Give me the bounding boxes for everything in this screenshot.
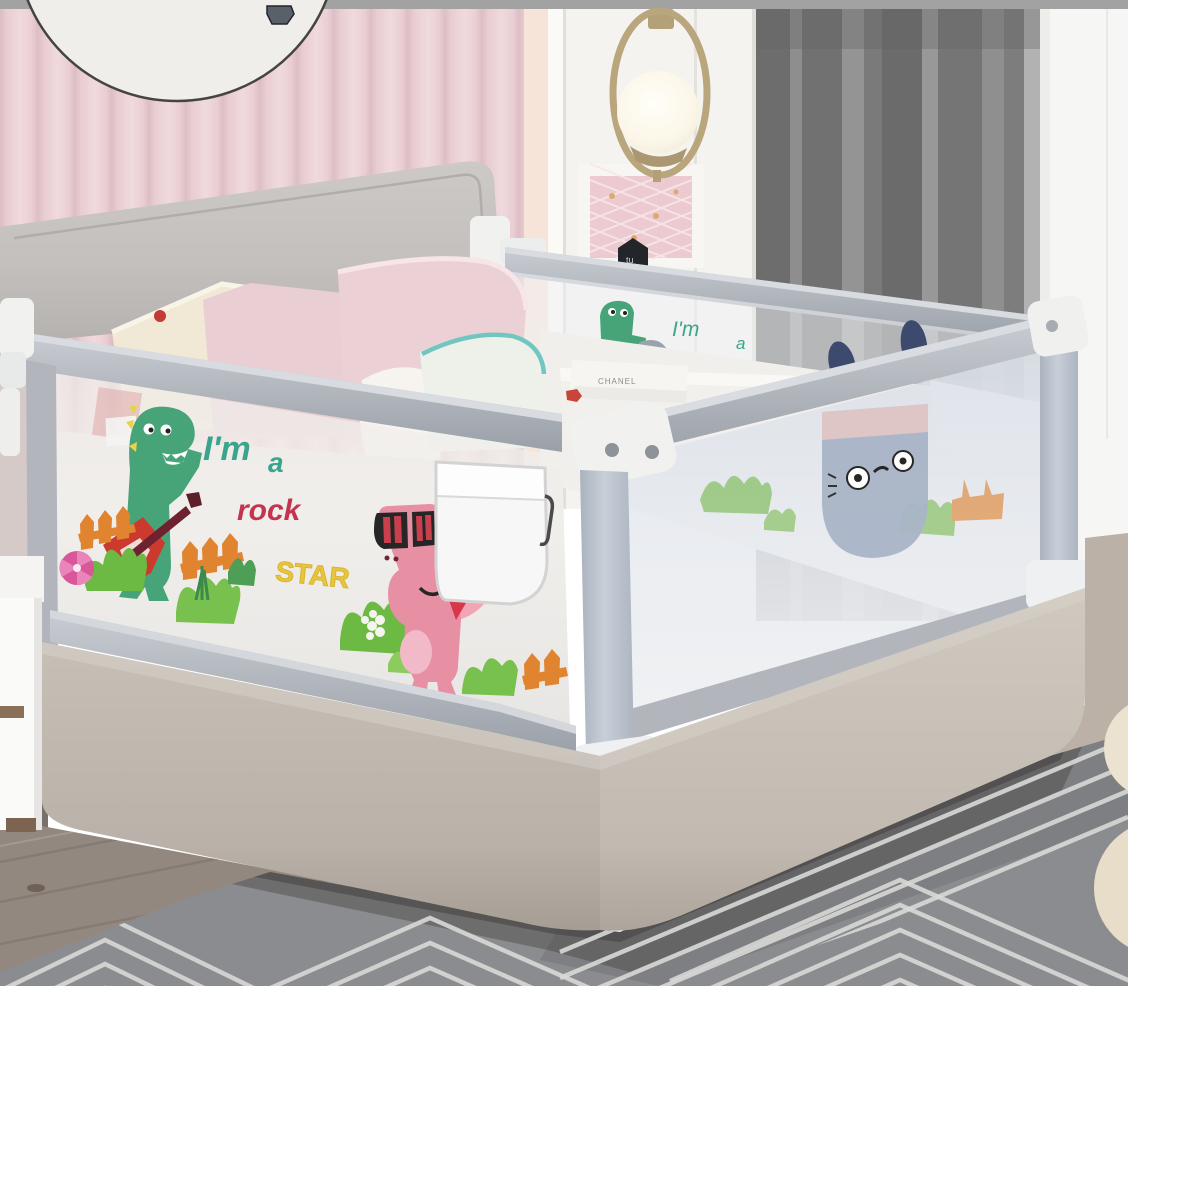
svg-text:rock: rock [237,494,302,527]
svg-text:I'm: I'm [203,430,251,468]
svg-text:a: a [736,334,745,353]
svg-text:a: a [268,447,284,478]
svg-text:I'm: I'm [672,318,699,341]
svg-text:CHANEL: CHANEL [598,377,636,386]
